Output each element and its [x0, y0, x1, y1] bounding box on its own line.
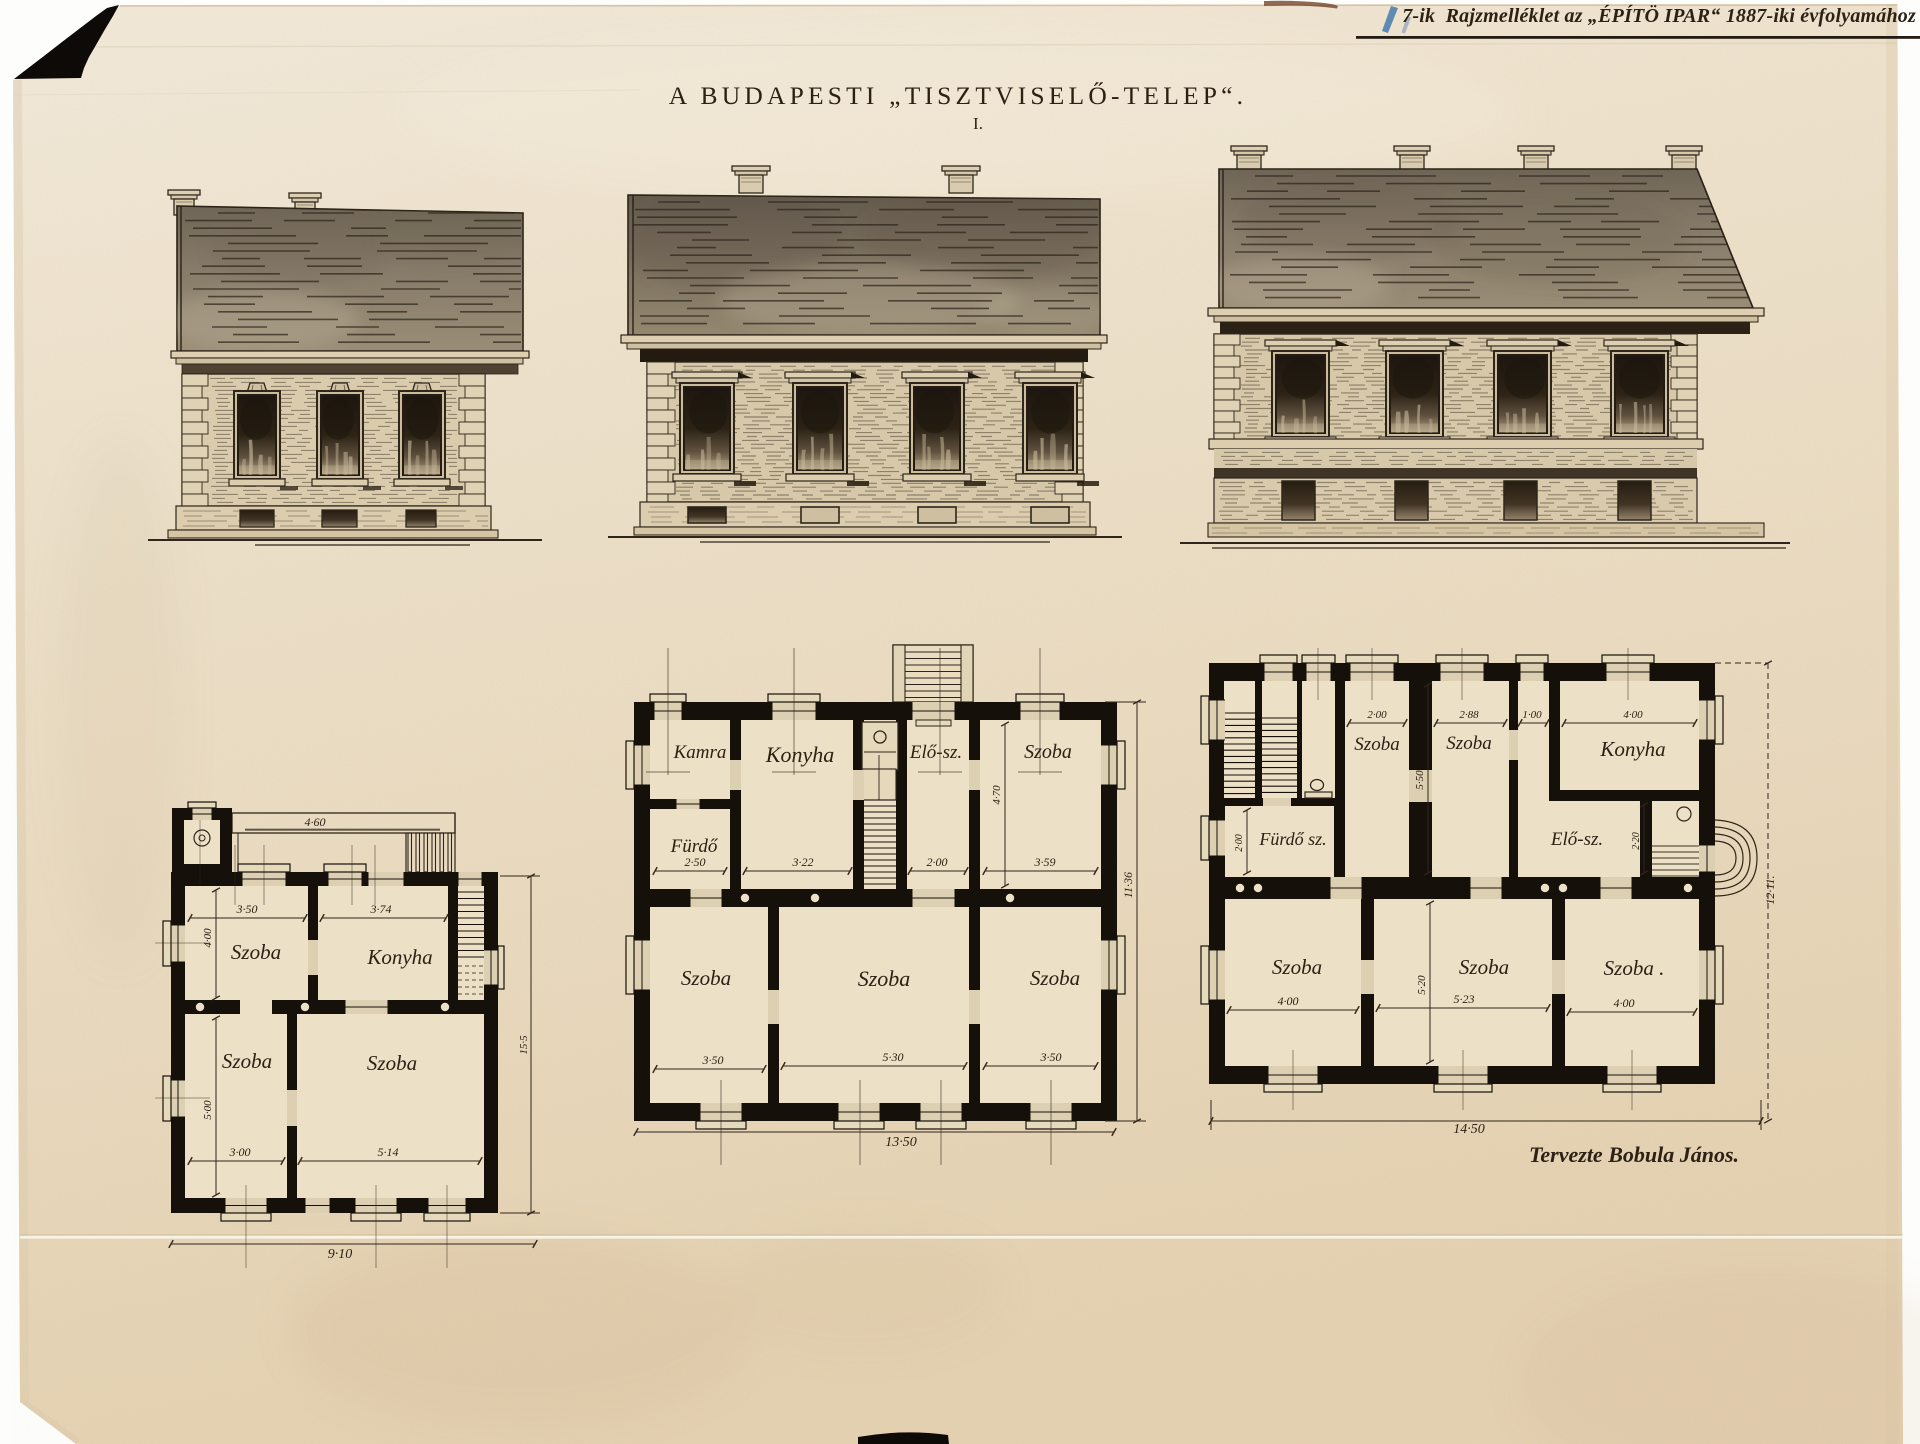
svg-text:3·22: 3·22: [792, 855, 814, 869]
svg-text:2·00: 2·00: [927, 855, 948, 869]
svg-text:3·00: 3·00: [229, 1145, 251, 1159]
svg-text:5·30: 5·30: [883, 1050, 904, 1064]
svg-text:Elő-sz.: Elő-sz.: [1550, 829, 1603, 850]
svg-text:Szoba: Szoba: [1030, 966, 1080, 990]
svg-text:7-ik Rajzmelléklet az „ÉPÍTÖ: 7-ik Rajzmelléklet az „ÉPÍTÖ IPAR“ 1887-…: [1402, 4, 1916, 27]
svg-text:Szoba: Szoba: [858, 966, 911, 991]
svg-text:Szoba: Szoba: [1024, 741, 1072, 763]
svg-text:Szoba: Szoba: [681, 966, 731, 990]
svg-text:Szoba: Szoba: [222, 1049, 272, 1073]
svg-text:4·00: 4·00: [1623, 709, 1643, 721]
svg-text:I.: I.: [973, 114, 983, 133]
svg-text:3·50: 3·50: [236, 902, 258, 916]
svg-text:Szoba: Szoba: [231, 940, 281, 964]
svg-text:5·20: 5·20: [1416, 975, 1428, 995]
svg-text:9·10: 9·10: [328, 1247, 353, 1262]
svg-text:15·5: 15·5: [518, 1035, 530, 1055]
svg-text:Szoba: Szoba: [1354, 734, 1399, 755]
svg-text:12·11.: 12·11.: [1763, 875, 1777, 904]
svg-text:11·36: 11·36: [1121, 872, 1135, 898]
svg-text:Szoba: Szoba: [1459, 955, 1509, 979]
svg-text:5·00: 5·00: [202, 1100, 214, 1120]
svg-text:4·00: 4·00: [202, 928, 214, 948]
svg-text:4·70: 4·70: [991, 785, 1003, 805]
svg-text:4·60: 4·60: [305, 815, 326, 829]
svg-text:Kamra: Kamra: [673, 742, 727, 763]
svg-text:Fürdő: Fürdő: [670, 836, 719, 857]
svg-text:3·74: 3·74: [370, 902, 392, 916]
svg-text:Fürdő sz.: Fürdő sz.: [1258, 829, 1326, 849]
svg-text:Konyha: Konyha: [765, 742, 834, 767]
svg-text:1·00: 1·00: [1522, 709, 1542, 721]
svg-text:Konyha: Konyha: [1599, 737, 1665, 761]
svg-text:Szoba: Szoba: [1446, 733, 1491, 754]
svg-text:14·50: 14·50: [1453, 1122, 1485, 1137]
svg-text:2·00: 2·00: [1367, 709, 1387, 721]
svg-text:4·00: 4·00: [1614, 996, 1635, 1010]
svg-text:2·88: 2·88: [1459, 709, 1479, 721]
svg-text:Tervezte Bobula János.: Tervezte Bobula János.: [1529, 1142, 1739, 1167]
svg-text:3·59: 3·59: [1034, 855, 1056, 869]
svg-text:Szoba: Szoba: [367, 1051, 417, 1075]
svg-text:3·50: 3·50: [1040, 1050, 1062, 1064]
svg-text:2·50: 2·50: [685, 855, 706, 869]
svg-text:2·00: 2·00: [1234, 834, 1245, 852]
svg-text:A BUDAPESTI „TISZTVISELŐ-TELEP: A BUDAPESTI „TISZTVISELŐ-TELEP“.: [669, 81, 1247, 110]
svg-text:5·23: 5·23: [1454, 992, 1475, 1006]
svg-text:Konyha: Konyha: [366, 945, 432, 969]
svg-text:4·00: 4·00: [1278, 994, 1299, 1008]
svg-text:Szoba: Szoba: [1272, 955, 1322, 979]
svg-text:5·50: 5·50: [1414, 770, 1426, 790]
svg-text:2·20: 2·20: [1631, 832, 1642, 850]
svg-text:Szoba .: Szoba .: [1604, 956, 1665, 980]
svg-text:3·50: 3·50: [702, 1053, 724, 1067]
svg-text:Elő-sz.: Elő-sz.: [909, 742, 962, 763]
svg-text:13·50: 13·50: [885, 1135, 917, 1150]
svg-text:5·14: 5·14: [378, 1145, 399, 1159]
